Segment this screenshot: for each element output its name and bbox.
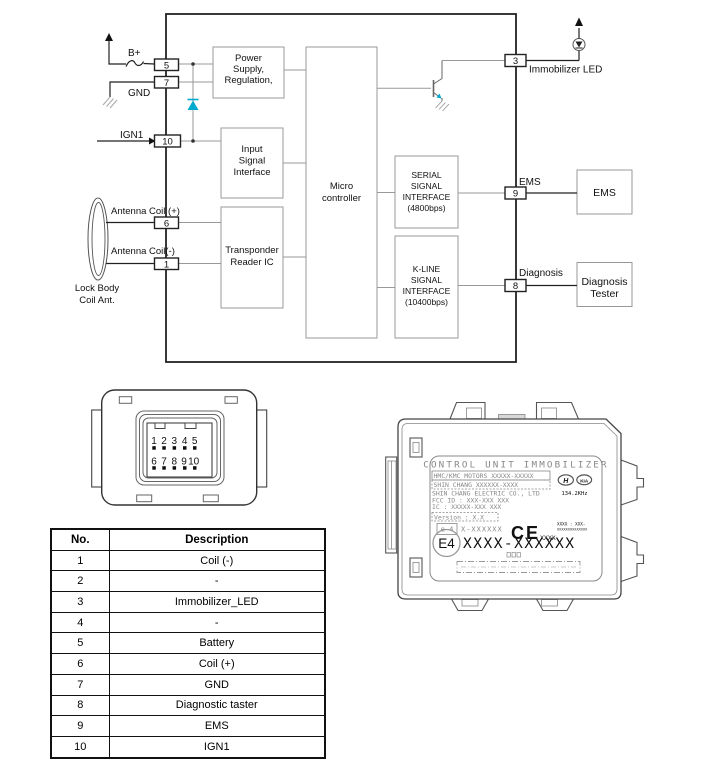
pin-6-number: 6 — [164, 218, 169, 229]
pin-no: 4 — [51, 612, 109, 633]
table-header-row: No. Description — [51, 529, 325, 550]
kia-letters: KIA — [580, 478, 589, 483]
pin-no: 3 — [51, 592, 109, 613]
led-triangle — [576, 42, 583, 48]
kline-label-4: (10400bps) — [405, 297, 448, 307]
pin-description: IGN1 — [109, 736, 325, 757]
immobilizer-led-label: Immobilizer LED — [529, 65, 602, 76]
input-label-1: Input — [241, 144, 262, 155]
input-label-3: Interface — [234, 167, 271, 178]
control-unit-drawing: CONTROL UNIT IMMOBILIZER HMC/KMC MOTORS … — [385, 395, 651, 617]
ems-box-label: EMS — [593, 187, 616, 199]
lock-body-label-1: Lock Body — [75, 283, 120, 294]
block-labels: Power Supply, Regulation, Input Signal I… — [224, 53, 627, 307]
bplus-label: B+ — [128, 48, 141, 59]
power-label-3: Regulation, — [224, 75, 272, 86]
ground-icon — [436, 101, 450, 111]
conn-pin-2: 2 — [161, 436, 167, 447]
pin-no: 7 — [51, 674, 109, 695]
pin-description-table: No. Description 1Coil (-) 2- 3Immobilize… — [50, 528, 326, 759]
power-label-1: Power — [235, 53, 262, 64]
table-row: 2- — [51, 571, 325, 592]
micro-label-1: Micro — [330, 181, 353, 192]
table-row: 8Diagnostic taster — [51, 695, 325, 716]
ign1-label: IGN1 — [120, 130, 144, 141]
up-arrow-icon — [105, 33, 113, 41]
diode-icon — [188, 101, 199, 111]
tiny-marks — [507, 553, 520, 558]
input-label-2: Signal — [239, 156, 265, 167]
pin-description: Coil (+) — [109, 654, 325, 675]
table-row: 5Battery — [51, 633, 325, 654]
conn-pin-7: 7 — [161, 456, 167, 467]
emitter-arrow — [437, 94, 442, 99]
pin-description: Diagnostic taster — [109, 695, 325, 716]
conn-pin-1: 1 — [151, 436, 157, 447]
keying-notch — [185, 423, 196, 429]
pin-no: 8 — [51, 695, 109, 716]
immobilizer-schematic-page: { "colors": { "cyan": "#00a9ce", "line_d… — [0, 0, 701, 772]
version-label: Version : X.X — [434, 513, 484, 521]
junction-dot — [191, 62, 195, 66]
device-title: CONTROL UNIT IMMOBILIZER — [423, 460, 609, 471]
kline-label-3: INTERFACE — [403, 286, 451, 296]
gnd-label: GND — [128, 88, 150, 99]
table-row: 3Immobilizer_LED — [51, 592, 325, 613]
serial-label-1: SERIAL — [411, 170, 442, 180]
pin-5-number: 5 — [164, 60, 169, 71]
conn-pin-10: 10 — [188, 456, 200, 467]
kline-label-2: SIGNAL — [411, 275, 442, 285]
pin-8-number: 8 — [513, 281, 518, 292]
transponder-label-2: Reader IC — [230, 257, 273, 268]
pin-no: 10 — [51, 736, 109, 757]
pin-description: GND — [109, 674, 325, 695]
keying-notch — [155, 423, 165, 429]
immobilizer-led-branch — [526, 18, 585, 61]
transistor-icon — [434, 61, 506, 112]
kline-label-1: K-LINE — [413, 264, 441, 274]
pin-description: - — [109, 571, 325, 592]
conn-pin-3: 3 — [172, 436, 178, 447]
top-bump — [499, 415, 526, 420]
up-arrow-icon — [575, 18, 583, 27]
pin-description: EMS — [109, 716, 325, 737]
antenna-coil-minus-label: Antenna Coil(-) — [111, 246, 175, 257]
tiny-text-2: XXXXXXXXXXXXXX — [557, 528, 588, 532]
protection-diode-branch — [188, 62, 199, 143]
fuse-squiggle-icon — [126, 61, 144, 67]
table-row: 1Coil (-) — [51, 550, 325, 571]
col-header-description: Description — [109, 529, 325, 550]
e4-big-label: E4 — [438, 536, 455, 551]
lock-body-label-2: Coil Ant. — [79, 295, 114, 306]
table-row: 4- — [51, 612, 325, 633]
table-row: 6Coil (+) — [51, 654, 325, 675]
pin-1-number: 1 — [164, 259, 169, 270]
pin-3-number: 3 — [513, 56, 518, 67]
pin-10-number: 10 — [162, 137, 173, 148]
tester-label-2: Tester — [590, 288, 619, 300]
antenna-coil-plus-label: Antenna Coil (+) — [111, 206, 180, 217]
junction-dot — [191, 139, 195, 143]
diagnosis-pin-label: Diagnosis — [519, 268, 563, 279]
serial-label-2: SIGNAL — [411, 181, 442, 191]
conn-pin-5: 5 — [192, 436, 198, 447]
corner-details — [410, 438, 422, 577]
pin-no: 6 — [51, 654, 109, 675]
pin-7-number: 7 — [164, 78, 169, 89]
power-label-2: Supply, — [233, 64, 264, 75]
pin-description: - — [109, 612, 325, 633]
frequency-label: 134.2KHz — [562, 491, 588, 497]
transponder-label-1: Transponder — [225, 245, 279, 256]
ems-pin-label: EMS — [519, 177, 541, 188]
pin-description: Battery — [109, 633, 325, 654]
circuit-block-diagram: 5 7 10 6 1 3 9 8 B+ GND IGN1 Antenna Coi… — [0, 0, 701, 382]
device-line-5: IC : XXXXX-XXX XXX — [432, 503, 501, 511]
pin-description: Coil (-) — [109, 550, 325, 571]
serial-label-3: INTERFACE — [403, 192, 451, 202]
micro-label-2: controller — [322, 193, 361, 204]
pin-no: 1 — [51, 550, 109, 571]
serial-label-4: (4800bps) — [407, 203, 445, 213]
hyundai-letter: H — [563, 478, 569, 485]
device-line-1: HMC/KMC MOTORS XXXXX-XXXXX — [434, 472, 534, 480]
col-header-no: No. — [51, 529, 109, 550]
pin-boxes: 5 7 10 6 1 3 9 8 — [155, 55, 527, 292]
pin-no: 5 — [51, 633, 109, 654]
e4-code: X-XXXXXX — [461, 526, 503, 534]
pin-field — [147, 423, 212, 477]
pin-9-number: 9 — [513, 188, 518, 199]
table-row: 10IGN1 — [51, 736, 325, 757]
side-connector — [386, 457, 397, 553]
tester-label-1: Diagnosis — [581, 276, 627, 288]
big-part-code: XXXX-XXXXXX — [463, 536, 576, 552]
table-row: 7GND — [51, 674, 325, 695]
conn-pin-4: 4 — [182, 436, 188, 447]
conn-pin-8: 8 — [172, 456, 178, 467]
table-row: 9EMS — [51, 716, 325, 737]
pin-no: 2 — [51, 571, 109, 592]
pin-description: Immobilizer_LED — [109, 592, 325, 613]
connector-pinout-diagram: 1 2 3 4 5 6 7 8 9 10 — [85, 386, 280, 511]
conn-pin-6: 6 — [151, 456, 157, 467]
conn-pin-9: 9 — [181, 456, 187, 467]
ground-icon — [103, 97, 117, 108]
device-line-2: SHIN CHANG XXXXXX-XXXX — [434, 481, 519, 489]
pin-no: 9 — [51, 716, 109, 737]
